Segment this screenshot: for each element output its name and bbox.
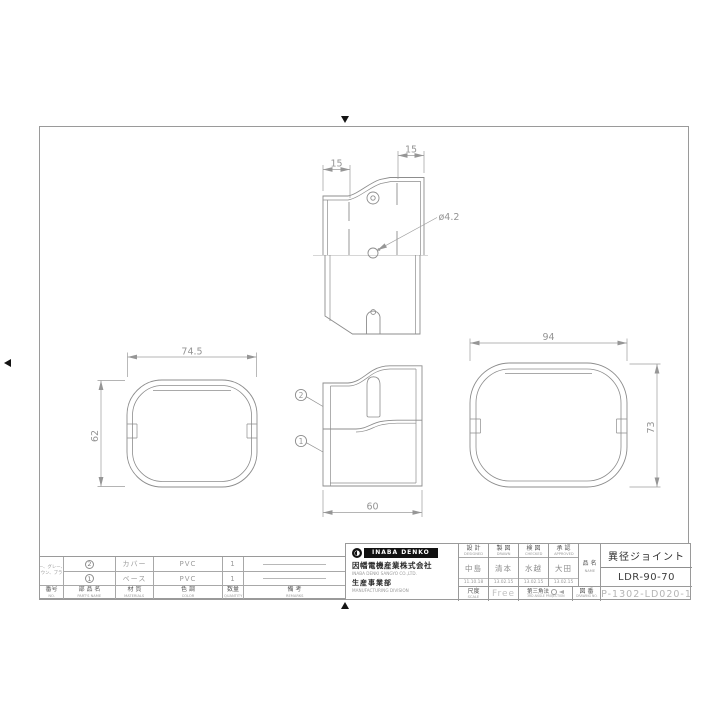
approval-col-designed: 設 計DESIGNED 中島 11.10.18 bbox=[459, 544, 489, 587]
approval-label-en: DESIGNED bbox=[464, 552, 483, 556]
scale-label-en: SCALE bbox=[468, 595, 480, 599]
header-qty-en: QUANTITY bbox=[224, 594, 242, 598]
row-balloon: 2 bbox=[85, 560, 94, 569]
scale-value: Free bbox=[489, 587, 519, 601]
color-line-2: ブラウン、ブラック bbox=[40, 571, 64, 577]
dim-large-width: 94 bbox=[542, 332, 554, 343]
name-label-jp: 品 名 bbox=[583, 558, 597, 567]
material-cell: PVC bbox=[154, 572, 223, 586]
lower-hole bbox=[371, 310, 376, 315]
dim-front-right: 15 bbox=[405, 145, 417, 156]
company-logo-text: INABA DENKO bbox=[364, 548, 438, 558]
product-name-label: 品 名 NAME bbox=[579, 544, 601, 587]
approval-name: 水越 bbox=[519, 558, 548, 578]
qty-cell: 1 bbox=[223, 572, 244, 586]
approval-label-en: APPROVED bbox=[554, 552, 574, 556]
approval-name: 清本 bbox=[489, 558, 518, 578]
dim-small-width: 74.5 bbox=[181, 347, 202, 358]
company-name-jp: 因幡電機産業株式会社 bbox=[352, 560, 458, 571]
dim-small-height: 62 bbox=[90, 430, 101, 442]
approval-name: 大田 bbox=[549, 558, 578, 578]
name-label-en: NAME bbox=[584, 568, 595, 573]
balloon-base-number: 1 bbox=[299, 437, 304, 446]
balloon-cover-number: 2 bbox=[299, 391, 304, 400]
material-cell: PVC bbox=[154, 557, 223, 572]
view-front-elevation bbox=[313, 178, 428, 335]
approval-date: 11.10.18 bbox=[459, 578, 488, 586]
dim-large-height: 73 bbox=[646, 421, 657, 433]
projection-en: 3RD ANGLE PROJECTION bbox=[527, 595, 564, 598]
remark-dash bbox=[263, 564, 326, 565]
table-row: 1 bbox=[64, 572, 116, 586]
scale-label: 尺度 SCALE bbox=[459, 587, 489, 601]
title-block: ◑ INABA DENKO 因幡電機産業株式会社 INABA DENKI SAN… bbox=[345, 543, 691, 600]
header-name: 部 品 名 PART'S NAME bbox=[64, 586, 116, 599]
drawing-number: P-1302-LD020-1 bbox=[601, 587, 692, 601]
qty-cell: 1 bbox=[223, 557, 244, 572]
approval-col-drawn: 製 図DRAWN 清本 13.02.15 bbox=[489, 544, 519, 587]
product-name: 異径ジョイント bbox=[601, 544, 692, 568]
drawing-no-label-en: DRAWING NO. bbox=[576, 595, 597, 598]
drawing-no-label: 図 番 DRAWING NO. bbox=[573, 587, 601, 601]
header-remarks-en: REMARKS bbox=[286, 594, 303, 598]
remarks-cell bbox=[244, 572, 345, 586]
finger-slot bbox=[367, 377, 380, 417]
approval-label-en: CHECKED bbox=[525, 552, 542, 556]
header-qty: 数量 QUANTITY bbox=[223, 586, 244, 599]
view-small-end bbox=[127, 380, 257, 487]
parts-table: 2 カバー PVC アイボリー、グレー、ホワイト ブラウン、ブラック 1 1 ベ… bbox=[39, 556, 346, 600]
header-name-en: PART'S NAME bbox=[78, 594, 102, 598]
view-side bbox=[323, 366, 422, 486]
company-logo: ◑ INABA DENKO bbox=[352, 548, 458, 558]
model-number: LDR-90-70 bbox=[601, 568, 692, 587]
approval-date: 13.02.15 bbox=[489, 578, 518, 586]
part-name-cell: カバー bbox=[116, 557, 154, 572]
company-name-en: INABA DENKI SANGYO CO.,LTD. bbox=[352, 571, 458, 576]
division-en: MANUFACTURING DIVISION bbox=[352, 588, 458, 593]
view-large-end bbox=[470, 363, 627, 487]
part-name-cell: ベース bbox=[116, 572, 154, 586]
approval-col-approved: 承 認APPROVED 大田 13.02.15 bbox=[549, 544, 579, 587]
dims-large-end bbox=[470, 339, 661, 488]
color-cell: アイボリー、グレー、ホワイト ブラウン、ブラック bbox=[40, 557, 64, 586]
projection-cell: 第三角法 3RD ANGLE PROJECTION bbox=[519, 587, 573, 601]
row-balloon: 1 bbox=[85, 574, 94, 583]
dim-side-width: 60 bbox=[366, 502, 378, 513]
table-row: 2 bbox=[64, 557, 116, 572]
drawing-views: 15 15 ø4.2 74.5 62 bbox=[0, 0, 713, 713]
header-remarks: 備 考 REMARKS bbox=[244, 586, 345, 599]
approval-date: 13.02.15 bbox=[549, 578, 578, 586]
scale-value-text: Free bbox=[492, 590, 515, 599]
header-material-en: MATERIALS bbox=[124, 594, 144, 598]
header-color: 色 調 COLOR bbox=[154, 586, 223, 599]
dim-hole-callout: ø4.2 bbox=[439, 212, 460, 223]
approval-name: 中島 bbox=[459, 558, 488, 578]
approval-date: 13.02.15 bbox=[519, 578, 548, 586]
remark-dash bbox=[263, 578, 326, 579]
dims-small-end bbox=[98, 353, 257, 487]
approval-col-checked: 検 図CHECKED 水越 13.02.15 bbox=[519, 544, 549, 587]
header-material: 材 質 MATERIALS bbox=[116, 586, 154, 599]
center-hole bbox=[368, 248, 378, 258]
drawing-sheet: 15 15 ø4.2 74.5 62 bbox=[0, 0, 713, 713]
company-logo-icon: ◑ bbox=[352, 548, 362, 558]
upper-hole bbox=[367, 192, 379, 204]
company-block: ◑ INABA DENKO 因幡電機産業株式会社 INABA DENKI SAN… bbox=[346, 544, 459, 601]
header-color-en: COLOR bbox=[182, 594, 195, 598]
approval-label-en: DRAWN bbox=[497, 552, 511, 556]
header-no: 番号 NO. bbox=[40, 586, 64, 599]
division-jp: 生産事業部 bbox=[352, 578, 458, 588]
remarks-cell bbox=[244, 557, 345, 572]
color-line-1: アイボリー、グレー、ホワイト bbox=[40, 565, 64, 571]
dim-front-left: 15 bbox=[330, 159, 342, 170]
header-no-en: NO. bbox=[48, 594, 55, 598]
